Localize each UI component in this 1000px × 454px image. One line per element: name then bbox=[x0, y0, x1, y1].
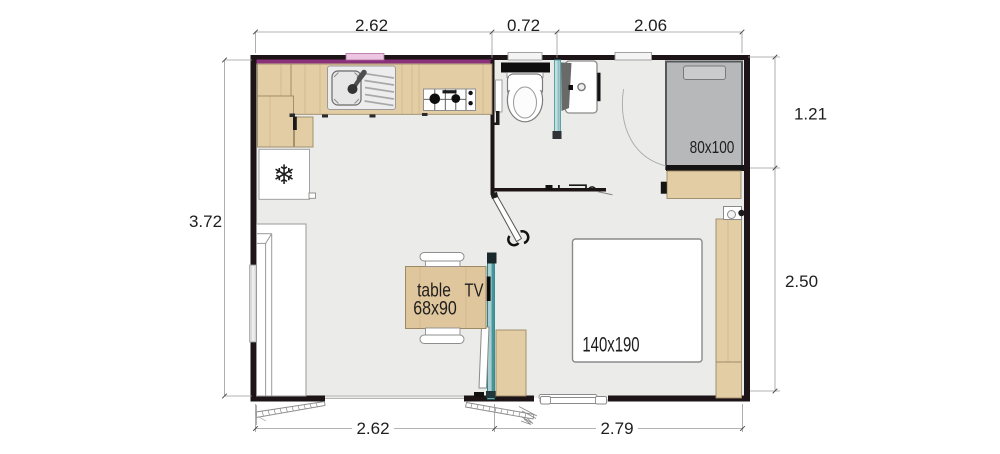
svg-text:140x190: 140x190 bbox=[582, 333, 639, 356]
svg-text:2.62: 2.62 bbox=[355, 16, 388, 35]
svg-text:1.21: 1.21 bbox=[794, 105, 827, 124]
svg-text:2.62: 2.62 bbox=[356, 419, 389, 438]
svg-text:2.79: 2.79 bbox=[600, 419, 633, 438]
svg-text:TV: TV bbox=[465, 280, 485, 301]
svg-text:2.50: 2.50 bbox=[785, 272, 818, 291]
svg-text:80x100: 80x100 bbox=[690, 139, 735, 158]
svg-text:2.06: 2.06 bbox=[634, 16, 667, 35]
svg-text:3.72: 3.72 bbox=[189, 212, 222, 231]
svg-text:0.72: 0.72 bbox=[507, 16, 540, 35]
svg-text:68x90: 68x90 bbox=[413, 297, 457, 319]
svg-text:❄: ❄ bbox=[273, 160, 296, 190]
